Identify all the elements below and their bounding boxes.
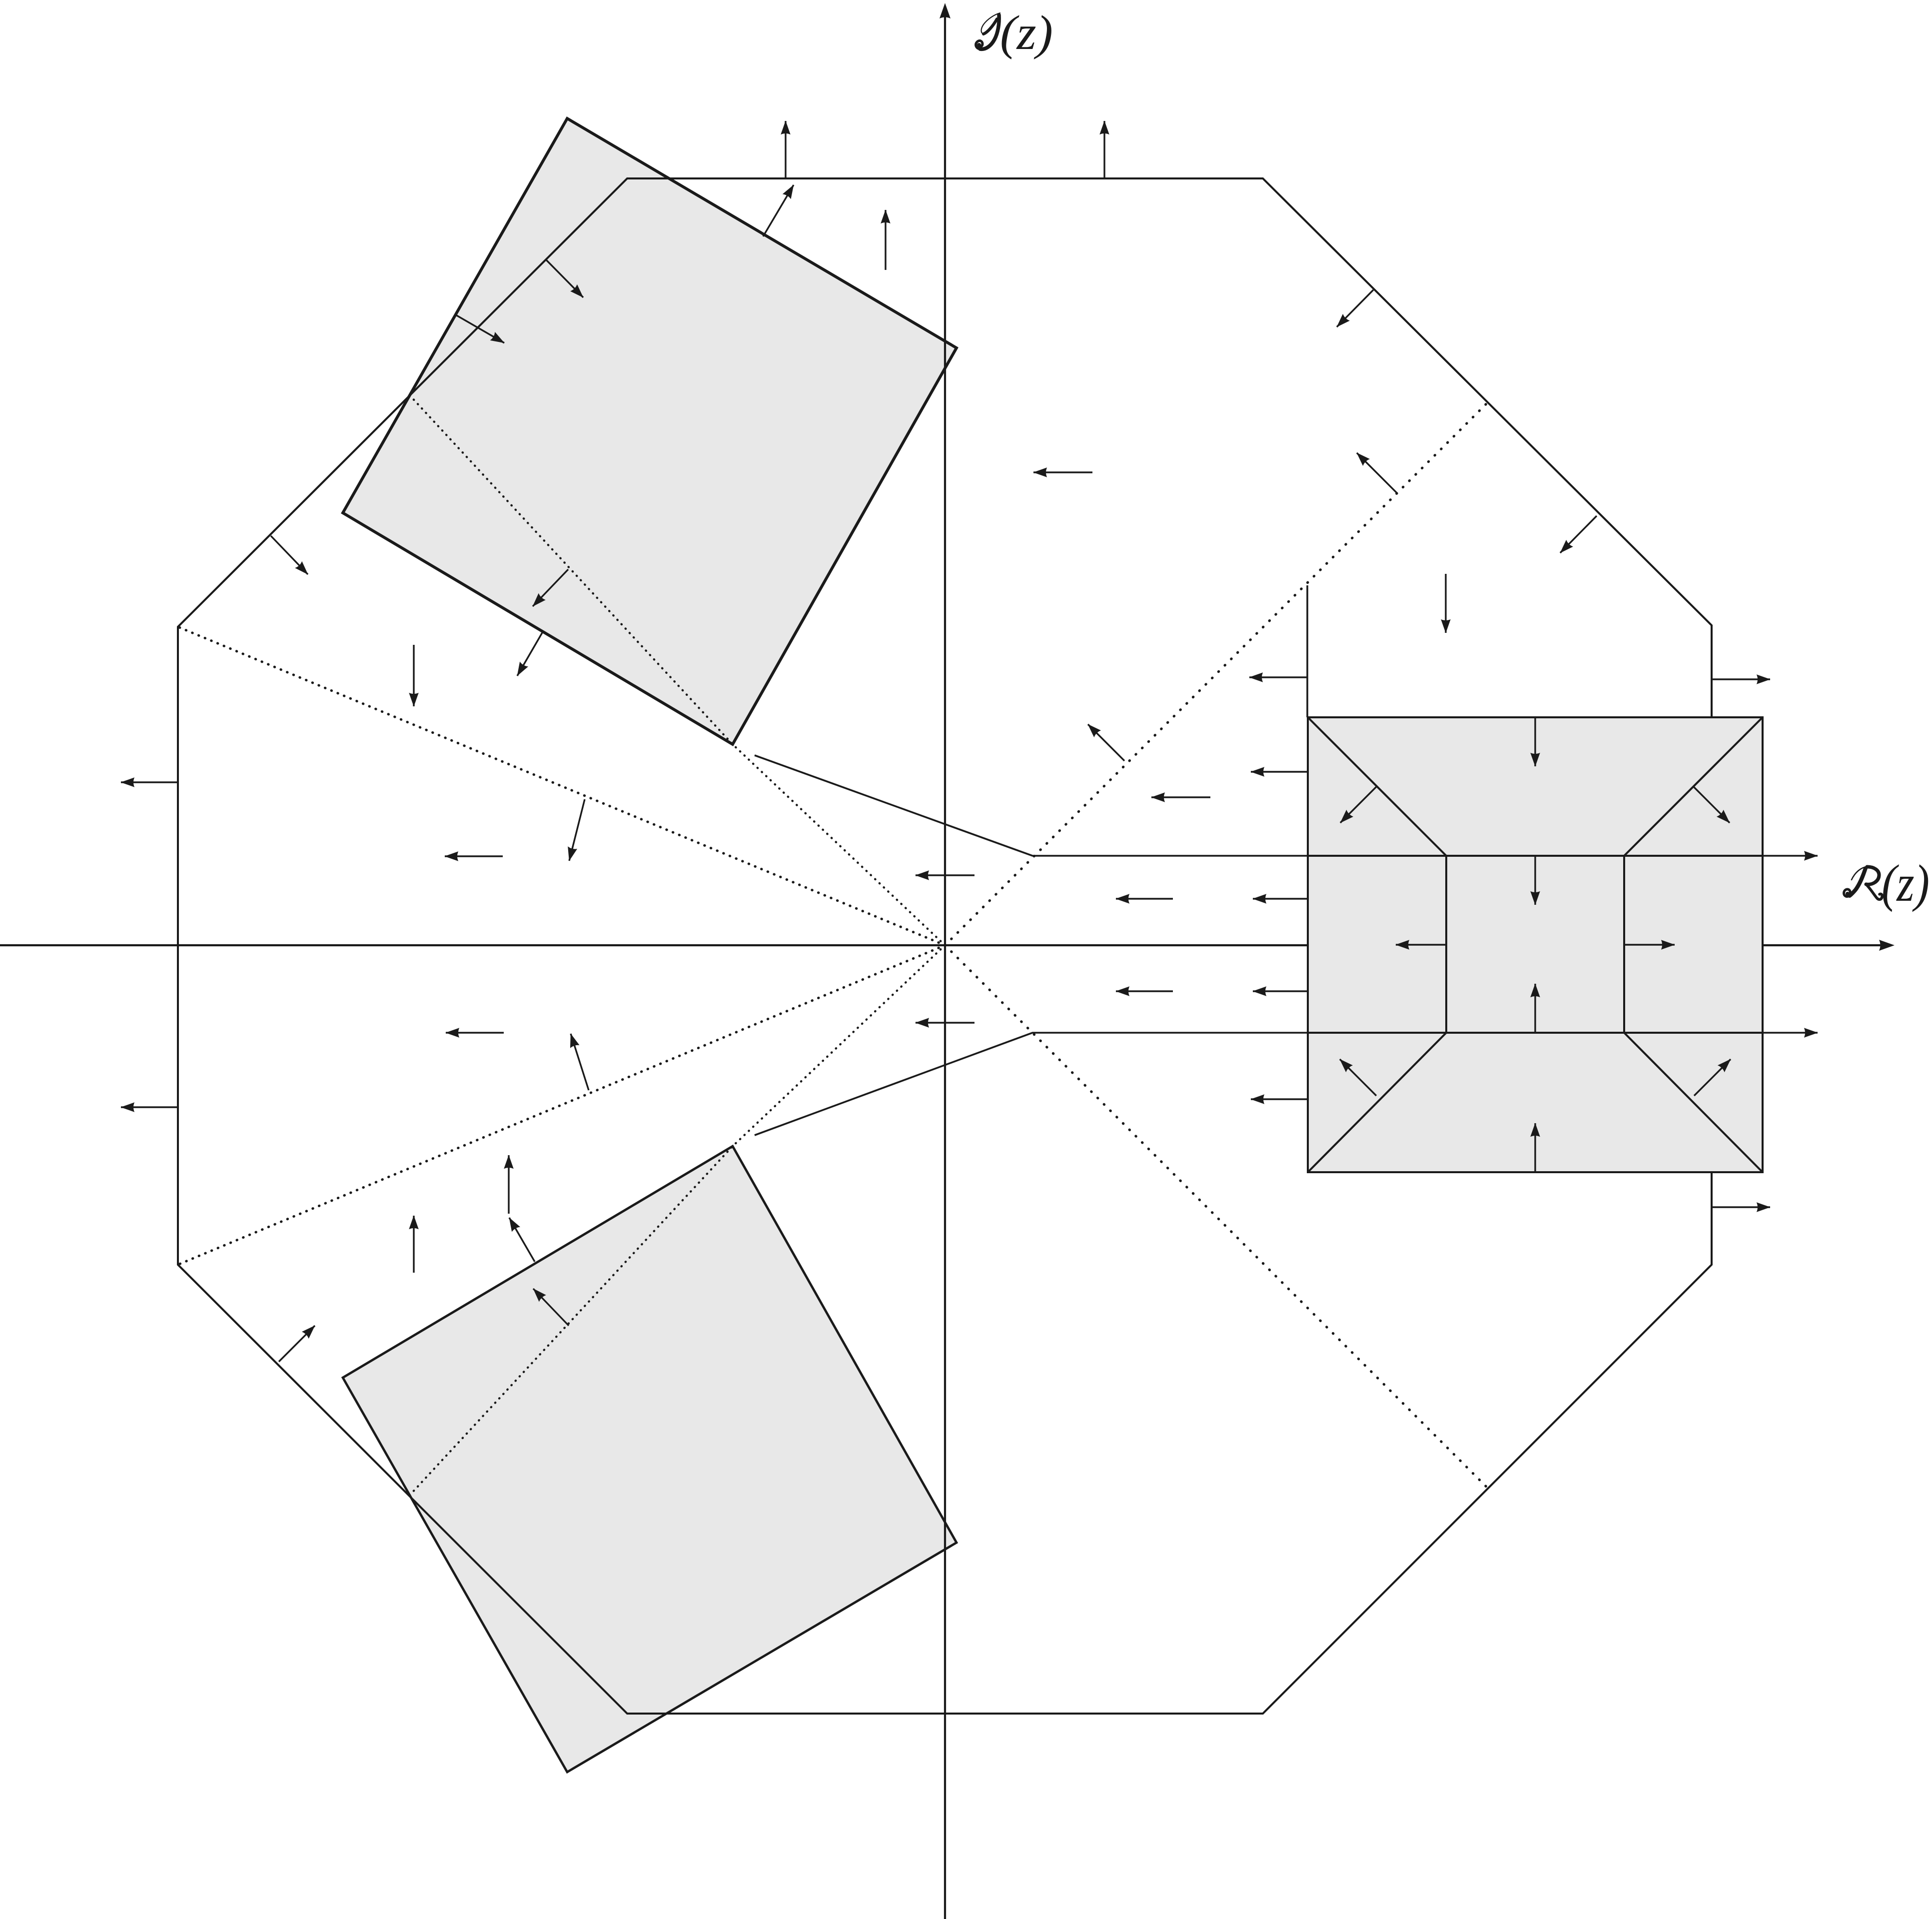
svg-text:(z): (z) [1882, 854, 1930, 912]
svg-text:(z): (z) [1000, 6, 1053, 60]
